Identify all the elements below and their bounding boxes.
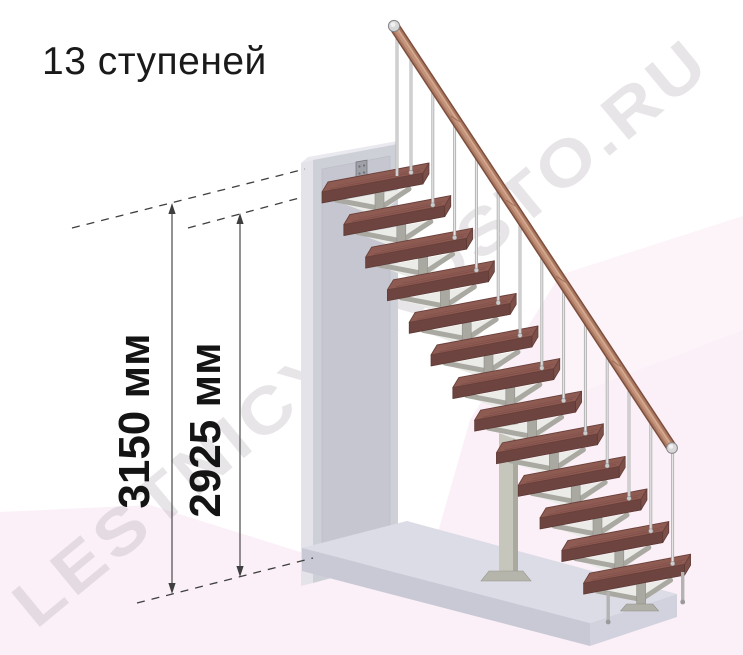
baluster-socket [627, 496, 631, 500]
baluster-socket [649, 529, 653, 533]
spine-post [637, 582, 646, 604]
baluster-socket [409, 170, 413, 174]
baluster-socket [670, 561, 674, 565]
baluster-socket [561, 398, 565, 402]
baluster-socket [452, 235, 456, 239]
handrail-bottom-cap [667, 443, 678, 454]
extension-line-top-step [188, 197, 303, 228]
extension-line-upper-floor [72, 169, 305, 228]
page-title: 13 ступеней [42, 40, 267, 84]
baluster-socket [496, 301, 500, 305]
dimension-label-top-step-height: 2925 мм [181, 342, 230, 517]
baluster-socket [431, 203, 435, 207]
handrail-top-cap [388, 20, 399, 31]
baluster-socket [518, 333, 522, 337]
dimension-label-total-height: 3150 мм [110, 333, 159, 508]
baluster-socket [540, 366, 544, 370]
diagram-canvas: LESTNICYPROSTO.RU [0, 0, 743, 655]
baluster-socket [474, 268, 478, 272]
wall-left-edge [301, 160, 313, 586]
baluster-socket [583, 431, 587, 435]
baluster-socket [605, 464, 609, 468]
column-foot [481, 571, 531, 581]
spine-foot [621, 604, 659, 611]
staircase-diagram: LESTNICYPROSTO.RU [0, 0, 743, 655]
dimension-line-total-height-arrow-up [168, 203, 175, 214]
